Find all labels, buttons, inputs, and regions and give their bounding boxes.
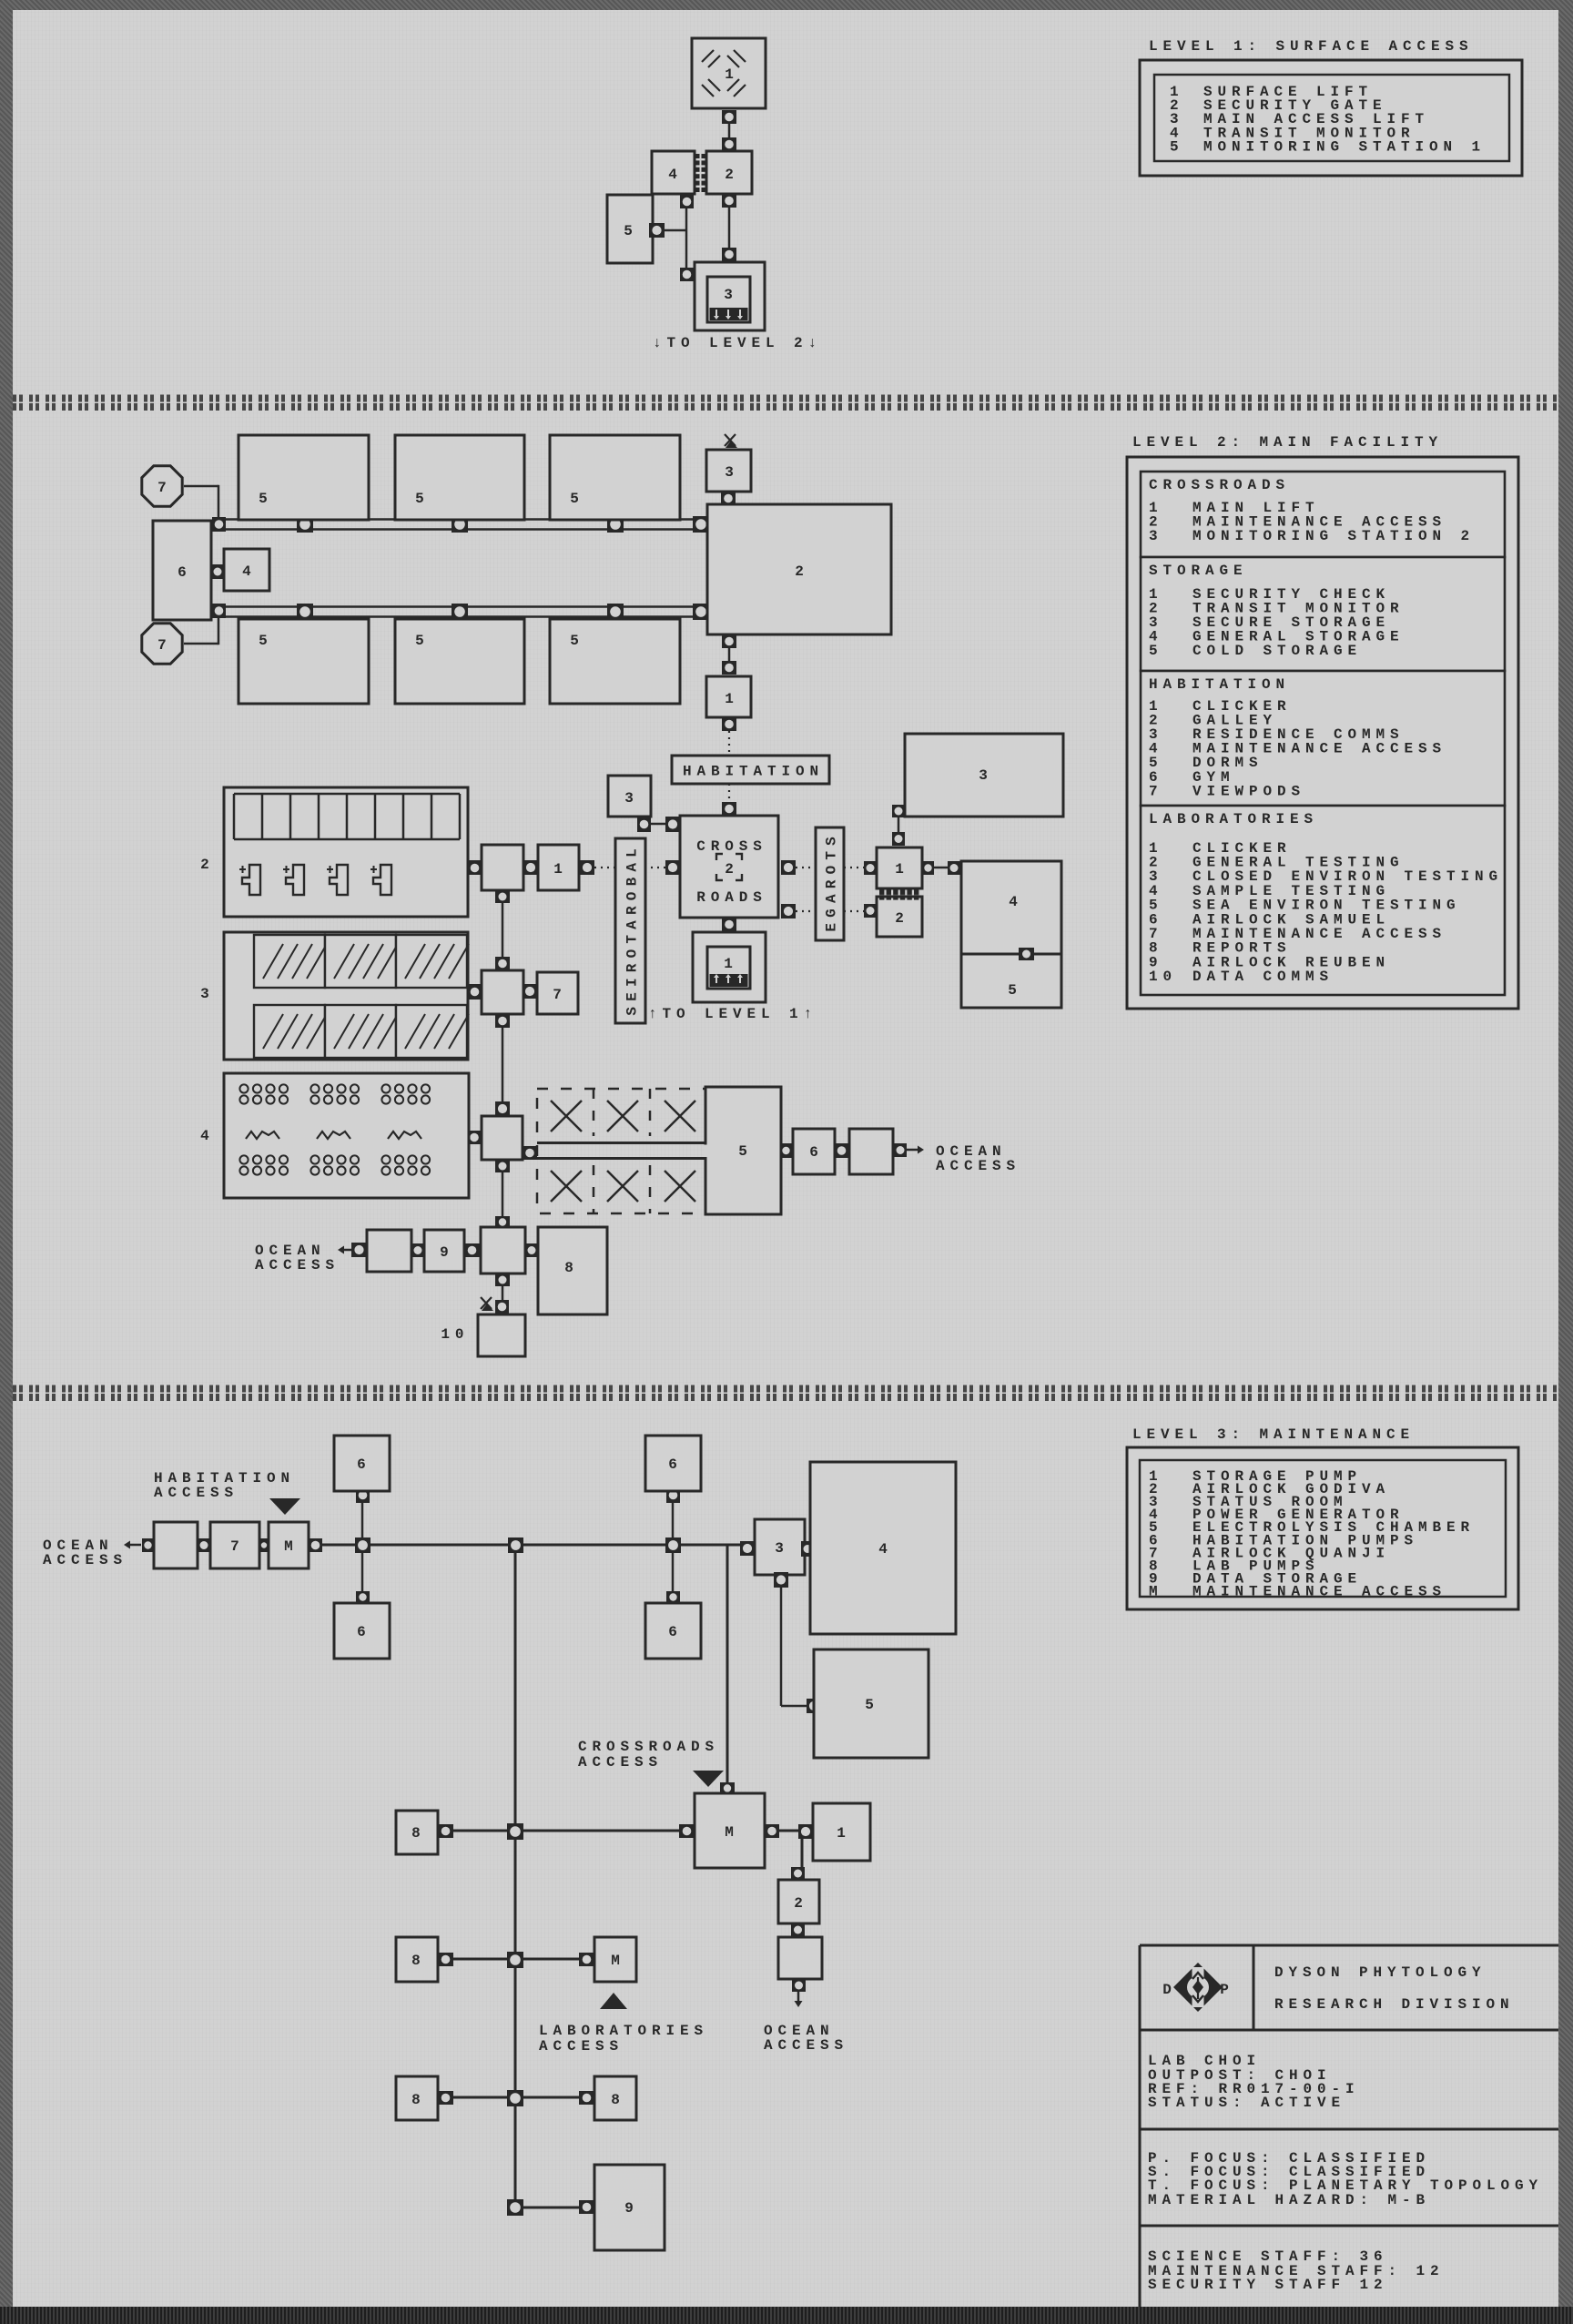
svg-text:2: 2 xyxy=(200,857,215,873)
svg-text:ACCESS: ACCESS xyxy=(936,1158,1020,1174)
svg-text:4: 4 xyxy=(200,1128,215,1144)
svg-text:4: 4 xyxy=(242,563,257,580)
svg-text:HABITATION: HABITATION xyxy=(1149,676,1290,693)
svg-text:5: 5 xyxy=(259,633,273,649)
svg-text:↑TO LEVEL 1↑: ↑TO LEVEL 1↑ xyxy=(648,1006,817,1022)
svg-text:B: B xyxy=(624,877,640,886)
svg-text:3: 3 xyxy=(725,464,739,481)
svg-text:STATUS: ACTIVE: STATUS: ACTIVE xyxy=(1148,2095,1345,2111)
svg-text:MONITORING STATION 1: MONITORING STATION 1 xyxy=(1203,139,1486,156)
svg-text:1: 1 xyxy=(837,1825,851,1842)
svg-text:P: P xyxy=(1220,1982,1234,1998)
svg-text:5: 5 xyxy=(624,223,638,239)
svg-text:O: O xyxy=(823,865,839,874)
svg-text:4: 4 xyxy=(668,167,683,183)
svg-text:ACCESS: ACCESS xyxy=(539,2038,624,2055)
svg-text:E: E xyxy=(624,992,640,1001)
svg-text:M: M xyxy=(611,1953,625,1969)
svg-text:6: 6 xyxy=(668,1624,683,1640)
svg-text:3: 3 xyxy=(624,790,639,807)
svg-text:CROSS: CROSS xyxy=(696,838,767,855)
svg-text:2: 2 xyxy=(795,563,809,580)
svg-text:3: 3 xyxy=(775,1540,789,1557)
svg-text:7: 7 xyxy=(230,1538,245,1555)
svg-text:6: 6 xyxy=(357,1456,371,1473)
svg-text:8: 8 xyxy=(411,1825,426,1842)
svg-text:5: 5 xyxy=(1008,982,1022,999)
svg-text:HABITATION: HABITATION xyxy=(683,763,824,779)
svg-text:CROSSROADS: CROSSROADS xyxy=(578,1739,719,1755)
svg-text:ROADS: ROADS xyxy=(696,889,767,906)
svg-text:9: 9 xyxy=(624,2200,639,2217)
svg-text:I: I xyxy=(624,978,640,987)
svg-text:8: 8 xyxy=(611,2092,625,2108)
svg-text:6: 6 xyxy=(357,1624,371,1640)
svg-text:E: E xyxy=(823,923,839,932)
svg-text:5: 5 xyxy=(570,491,584,507)
svg-text:2: 2 xyxy=(794,1895,808,1912)
svg-text:5: 5 xyxy=(415,491,430,507)
svg-text:3: 3 xyxy=(1149,528,1163,544)
svg-text:6: 6 xyxy=(178,564,192,581)
svg-text:ACCESS: ACCESS xyxy=(255,1257,340,1274)
svg-text:LEVEL 2: MAIN FACILITY: LEVEL 2: MAIN FACILITY xyxy=(1132,434,1443,451)
svg-text:STORAGE: STORAGE xyxy=(1149,563,1248,579)
svg-text:5: 5 xyxy=(259,491,273,507)
svg-text:R: R xyxy=(624,906,640,915)
svg-text:DYSON PHYTOLOGY: DYSON PHYTOLOGY xyxy=(1274,1964,1487,1981)
svg-text:L: L xyxy=(624,848,640,858)
svg-text:3: 3 xyxy=(979,767,993,784)
svg-text:5: 5 xyxy=(865,1697,879,1713)
svg-text:7: 7 xyxy=(553,987,567,1003)
svg-text:D: D xyxy=(1162,1982,1177,1998)
svg-text:A: A xyxy=(624,863,640,872)
svg-text:7: 7 xyxy=(1149,783,1163,799)
svg-text:M: M xyxy=(1149,1584,1163,1600)
svg-text:LABORATORIES: LABORATORIES xyxy=(1149,811,1318,827)
svg-text:3: 3 xyxy=(200,986,215,1002)
svg-text:6: 6 xyxy=(668,1456,683,1473)
svg-text:SECURITY STAFF 12: SECURITY STAFF 12 xyxy=(1148,2277,1388,2293)
svg-text:COLD STORAGE: COLD STORAGE xyxy=(1192,643,1362,659)
svg-text:5: 5 xyxy=(415,633,430,649)
svg-text:4: 4 xyxy=(878,1541,893,1558)
svg-text:2: 2 xyxy=(895,910,909,927)
svg-text:5: 5 xyxy=(1170,139,1184,156)
svg-text:O: O xyxy=(624,891,640,900)
svg-text:MATERIAL HAZARD: M-B: MATERIAL HAZARD: M-B xyxy=(1148,2192,1430,2208)
svg-text:5: 5 xyxy=(1149,643,1163,659)
svg-text:O: O xyxy=(624,949,640,958)
svg-text:1: 1 xyxy=(553,861,568,878)
svg-text:M: M xyxy=(284,1538,299,1555)
svg-text:4: 4 xyxy=(1009,894,1023,910)
svg-text:LEVEL 1: SURFACE ACCESS: LEVEL 1: SURFACE ACCESS xyxy=(1149,38,1474,55)
svg-text:A: A xyxy=(823,894,839,903)
svg-text:↓TO LEVEL 2↓: ↓TO LEVEL 2↓ xyxy=(653,335,822,351)
svg-text:1: 1 xyxy=(724,956,738,972)
svg-text:1: 1 xyxy=(895,861,909,878)
svg-text:8: 8 xyxy=(564,1260,579,1276)
svg-text:MAINTENANCE ACCESS: MAINTENANCE ACCESS xyxy=(1192,1584,1446,1600)
svg-text:R: R xyxy=(823,879,839,888)
svg-text:MONITORING STATION 2: MONITORING STATION 2 xyxy=(1192,528,1475,544)
svg-text:8: 8 xyxy=(411,2092,426,2108)
svg-text:T: T xyxy=(624,935,640,944)
svg-text:M: M xyxy=(725,1824,739,1841)
svg-text:8: 8 xyxy=(411,1953,426,1969)
svg-text:10: 10 xyxy=(441,1326,469,1343)
svg-text:A: A xyxy=(624,920,640,929)
svg-text:ACCESS: ACCESS xyxy=(764,2037,848,2054)
svg-text:R: R xyxy=(624,963,640,972)
svg-text:10: 10 xyxy=(1149,969,1177,985)
svg-text:7: 7 xyxy=(157,480,172,496)
svg-text:3: 3 xyxy=(724,287,738,303)
svg-text:1: 1 xyxy=(725,66,739,83)
svg-text:2: 2 xyxy=(725,861,739,878)
svg-text:T: T xyxy=(823,851,839,860)
svg-text:6: 6 xyxy=(809,1144,824,1161)
svg-text:ACCESS: ACCESS xyxy=(154,1485,238,1501)
svg-text:CROSSROADS: CROSSROADS xyxy=(1149,477,1290,493)
svg-text:S: S xyxy=(624,1007,640,1016)
svg-text:2: 2 xyxy=(725,167,739,183)
svg-text:5: 5 xyxy=(570,633,584,649)
svg-text:ACCESS: ACCESS xyxy=(578,1754,663,1771)
svg-text:RESEARCH DIVISION: RESEARCH DIVISION xyxy=(1274,1996,1515,2013)
svg-text:7: 7 xyxy=(157,637,172,654)
svg-text:5: 5 xyxy=(738,1143,753,1160)
svg-text:9: 9 xyxy=(440,1244,454,1261)
svg-text:LEVEL 3: MAINTENANCE: LEVEL 3: MAINTENANCE xyxy=(1132,1426,1415,1443)
svg-text:G: G xyxy=(823,908,839,918)
svg-text:LABORATORIES: LABORATORIES xyxy=(539,2023,708,2039)
svg-text:VIEWPODS: VIEWPODS xyxy=(1192,783,1305,799)
svg-text:1: 1 xyxy=(725,691,739,707)
svg-text:DATA COMMS: DATA COMMS xyxy=(1192,969,1334,985)
svg-text:S: S xyxy=(823,837,839,846)
svg-text:ACCESS: ACCESS xyxy=(43,1552,127,1568)
